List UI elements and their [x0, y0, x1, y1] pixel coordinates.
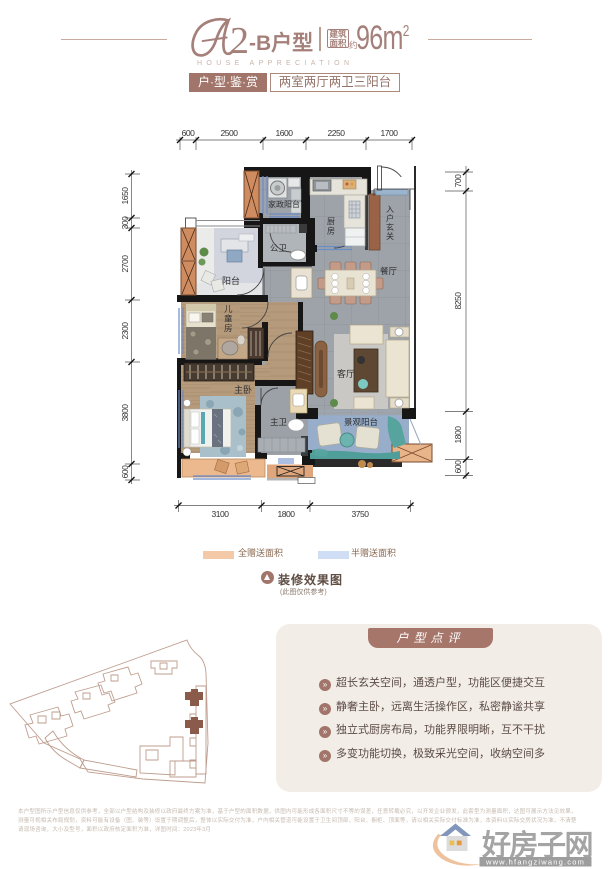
- svg-text:2250: 2250: [328, 128, 346, 138]
- svg-text:阳台: 阳台: [222, 275, 240, 286]
- svg-text:客厅: 客厅: [337, 368, 355, 379]
- svg-text:600: 600: [120, 465, 130, 478]
- svg-text:餐厅: 餐厅: [380, 266, 398, 276]
- svg-text:700: 700: [453, 174, 463, 187]
- svg-text:公卫: 公卫: [270, 243, 288, 253]
- svg-text:景观阳台: 景观阳台: [344, 417, 378, 427]
- svg-text:3100: 3100: [212, 509, 230, 519]
- svg-text:300: 300: [120, 216, 130, 229]
- svg-text:1600: 1600: [276, 128, 294, 138]
- svg-text:入户玄关: 入户玄关: [386, 205, 394, 241]
- svg-text:3750: 3750: [352, 509, 370, 519]
- svg-text:1700: 1700: [381, 128, 399, 138]
- svg-text:厨房: 厨房: [327, 217, 335, 236]
- svg-text:600: 600: [182, 128, 195, 138]
- svg-text:www.hfangziwang.com: www.hfangziwang.com: [485, 858, 585, 867]
- svg-text:2300: 2300: [120, 322, 130, 340]
- svg-text:3800: 3800: [120, 404, 130, 422]
- svg-text:家政阳台: 家政阳台: [268, 199, 300, 209]
- svg-text:儿童房: 儿童房: [224, 304, 233, 333]
- svg-text:主卧: 主卧: [234, 384, 252, 395]
- svg-text:2700: 2700: [120, 255, 130, 273]
- svg-text:1650: 1650: [120, 187, 130, 205]
- svg-text:1800: 1800: [278, 509, 296, 519]
- svg-text:2500: 2500: [221, 128, 239, 138]
- svg-text:1800: 1800: [453, 426, 463, 444]
- svg-text:600: 600: [453, 460, 463, 473]
- svg-text:主卫: 主卫: [270, 417, 288, 427]
- svg-text:8250: 8250: [453, 292, 463, 310]
